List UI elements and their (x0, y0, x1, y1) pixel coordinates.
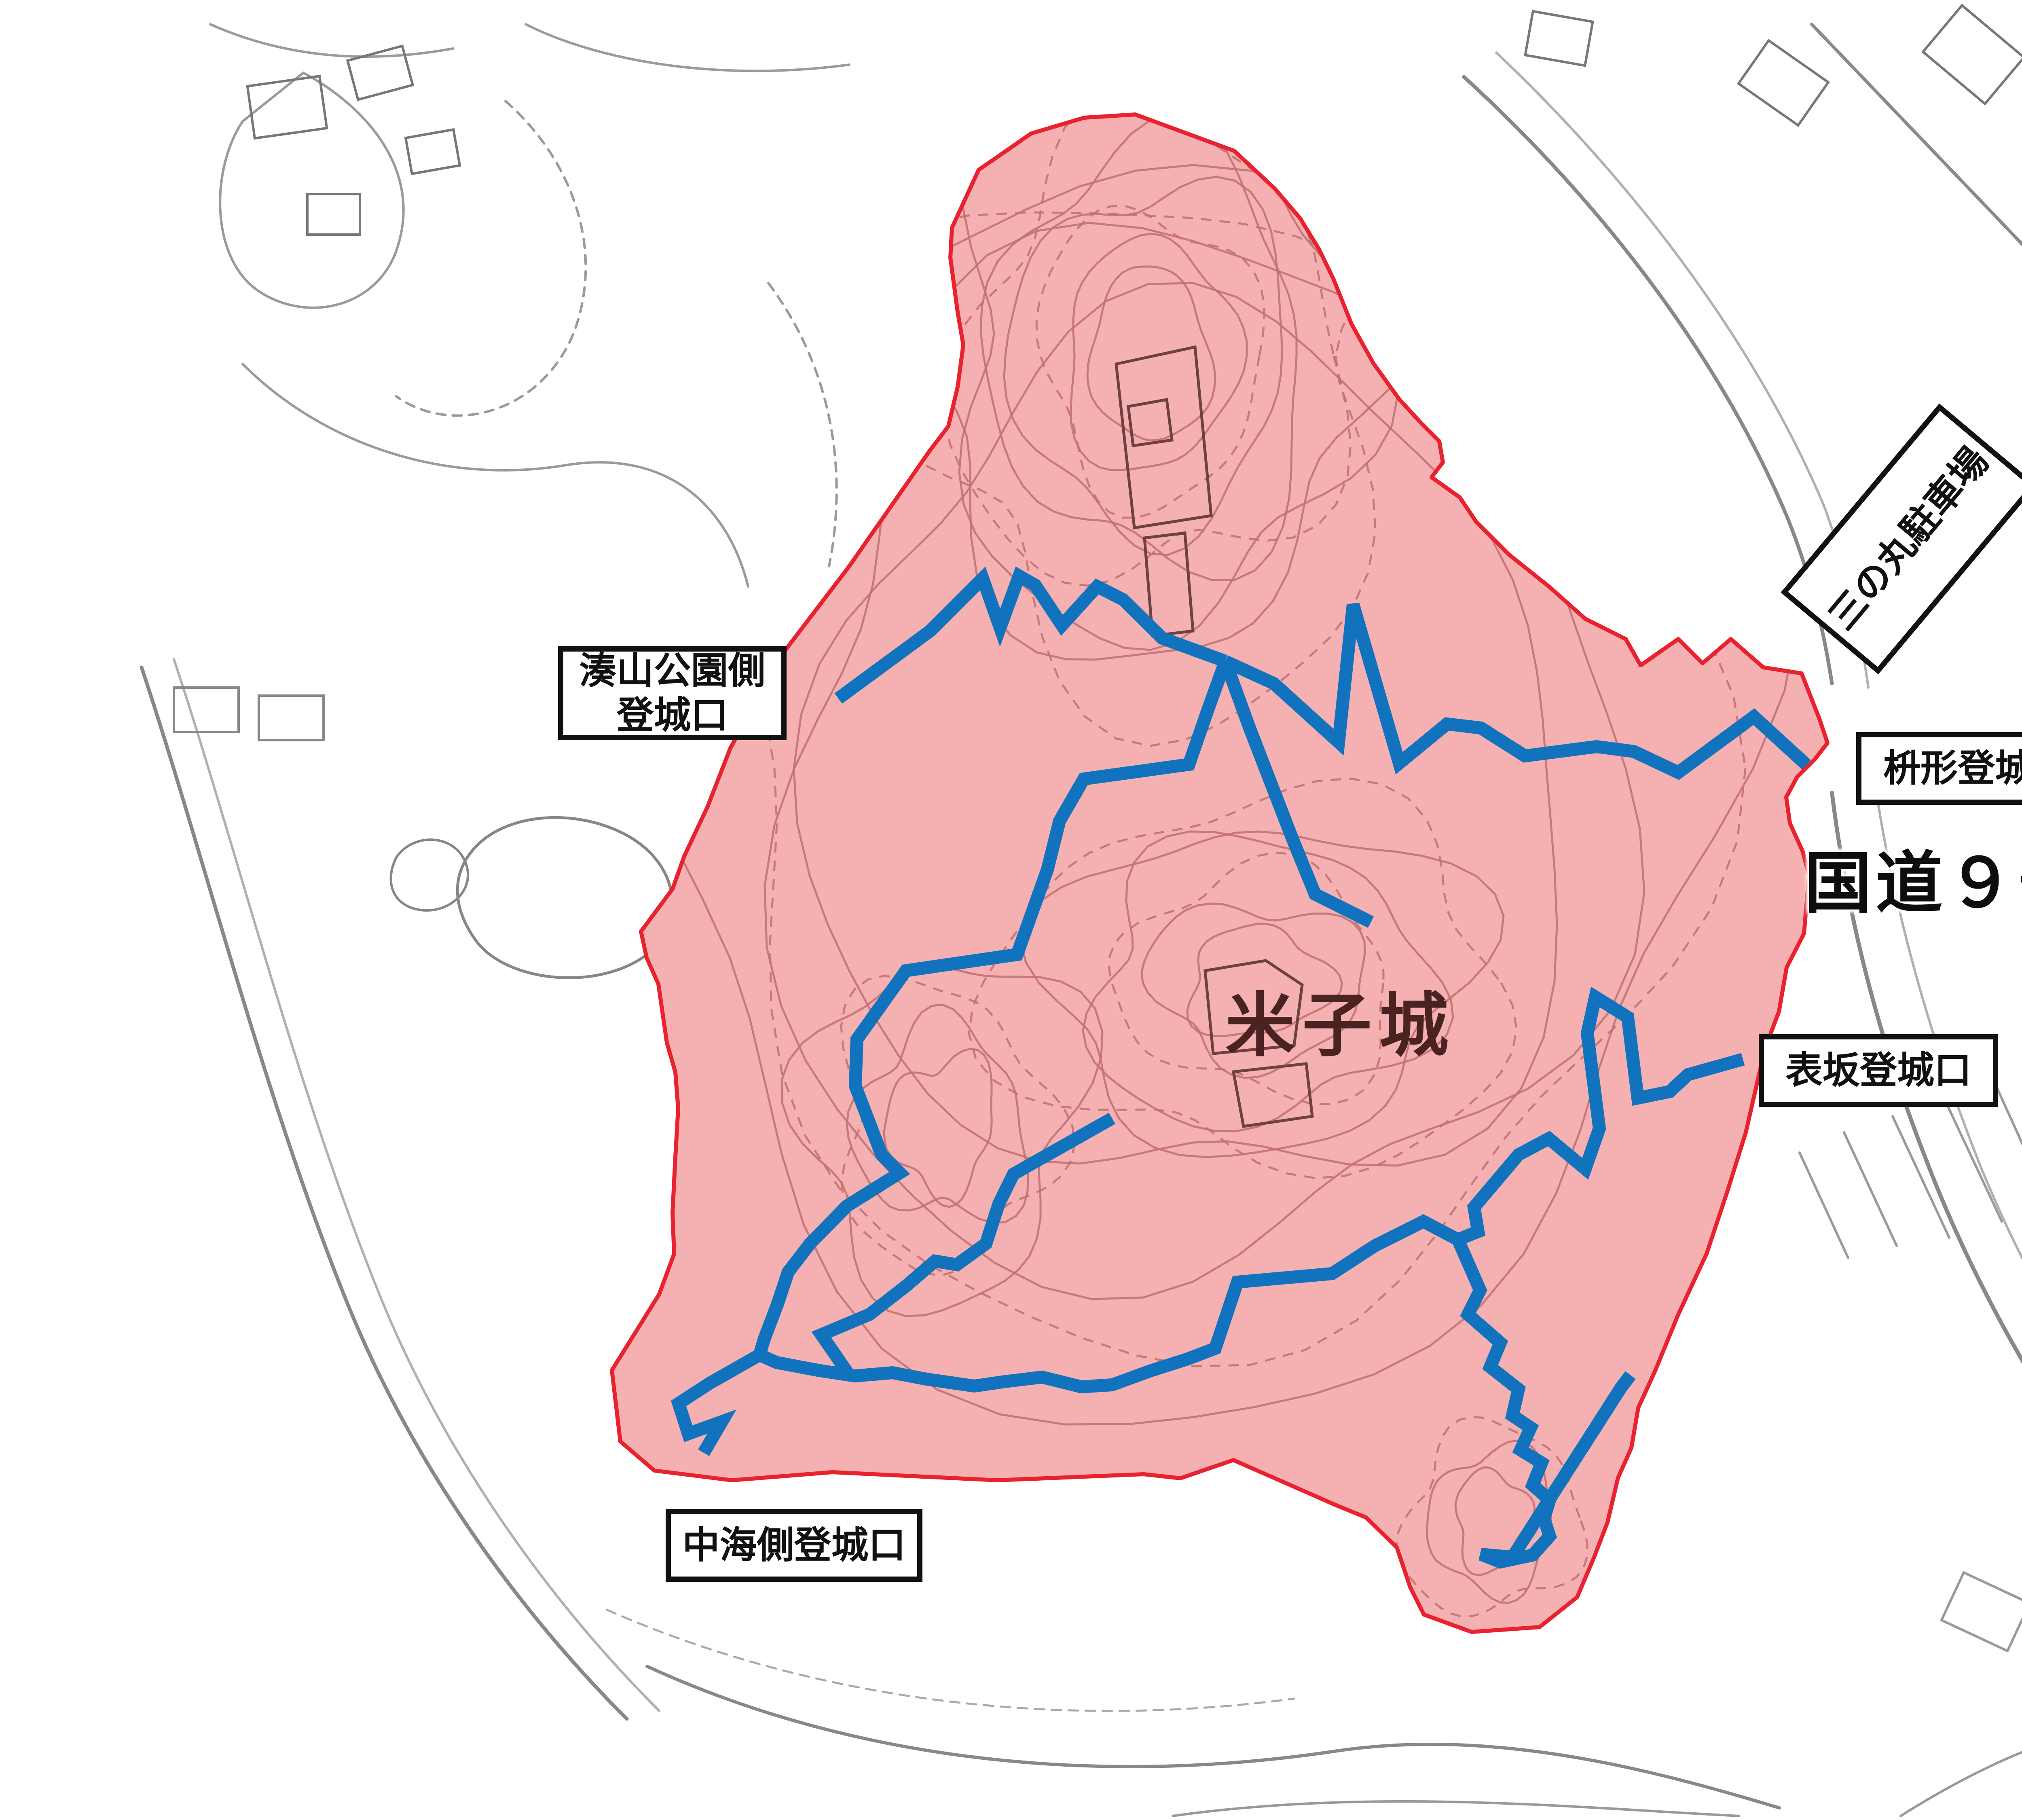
castle-area-region (612, 114, 1827, 1632)
label-masugata-entrance: 枡形登城口 (1856, 732, 2022, 805)
base-map-svg (0, 0, 2022, 1820)
route9-road-label: 国道９号 (1804, 828, 2022, 909)
castle-area-fill (612, 114, 1827, 1632)
label-minatoyama-entrance: 湊山公園側 登城口 (558, 646, 787, 740)
label-nakaumi-entrance: 中海側登城口 (666, 1509, 922, 1582)
map-page: 湊山公園側 登城口 三の丸駐車場 枡形登城口 表坂登城口 中海側登城口 米子城 … (0, 0, 2022, 1820)
castle-name-label: 米子城 (1225, 969, 1452, 1050)
label-omotezaka-entrance: 表坂登城口 (1759, 1034, 1998, 1107)
